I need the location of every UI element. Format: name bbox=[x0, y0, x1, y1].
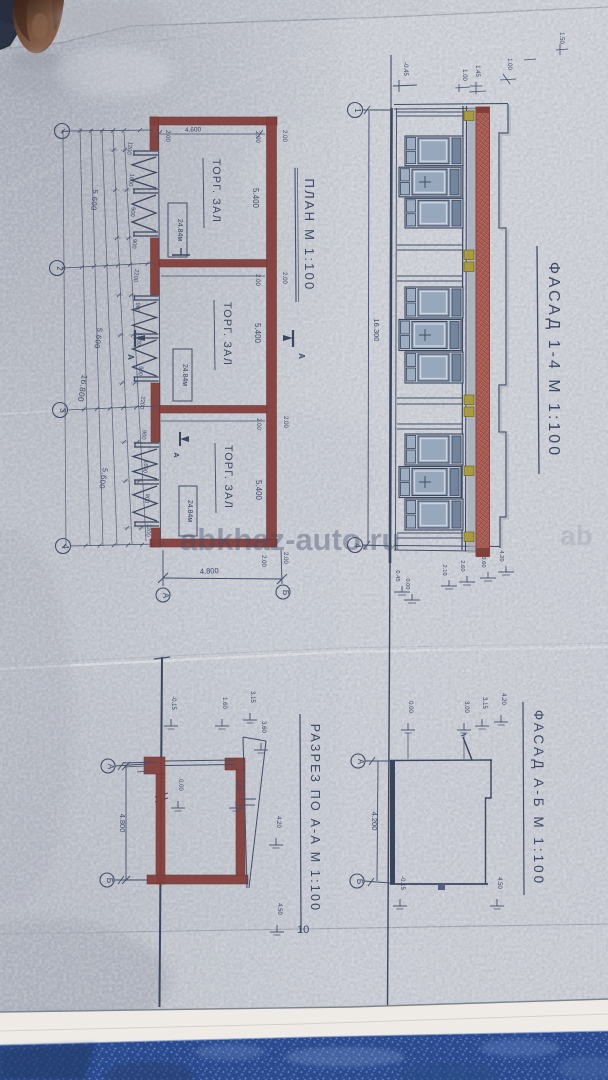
svg-text:4.20: 4.20 bbox=[500, 693, 506, 705]
svg-text:2.00: 2.00 bbox=[254, 274, 260, 286]
svg-text:900: 900 bbox=[130, 238, 137, 248]
svg-text:А: А bbox=[356, 759, 365, 765]
svg-text:10: 10 bbox=[297, 924, 309, 936]
svg-text:0.00: 0.00 bbox=[407, 701, 413, 713]
svg-text:2.00: 2.00 bbox=[260, 555, 266, 567]
svg-text:4.50: 4.50 bbox=[276, 903, 282, 915]
svg-text:1.60: 1.60 bbox=[221, 697, 227, 709]
svg-text:3.00: 3.00 bbox=[463, 701, 469, 713]
svg-text:1: 1 bbox=[353, 108, 362, 113]
svg-text:2.00: 2.00 bbox=[281, 130, 287, 142]
svg-text:-0.15: -0.15 bbox=[399, 876, 405, 890]
svg-text:900: 900 bbox=[143, 493, 150, 503]
svg-text:5.600: 5.600 bbox=[89, 189, 100, 211]
svg-text:-0.15: -0.15 bbox=[170, 696, 176, 710]
svg-text:ТОРГ. ЗАЛ: ТОРГ. ЗАЛ bbox=[222, 445, 234, 509]
svg-text:4.20: 4.20 bbox=[498, 550, 504, 561]
svg-text:5.400: 5.400 bbox=[254, 480, 263, 501]
svg-text:4.50: 4.50 bbox=[496, 877, 502, 889]
svg-text:4.600: 4.600 bbox=[185, 126, 202, 134]
svg-text:А: А bbox=[297, 353, 306, 359]
svg-text:А: А bbox=[172, 452, 181, 458]
svg-text:4.800: 4.800 bbox=[118, 814, 127, 833]
svg-text:1.00: 1.00 bbox=[506, 58, 512, 70]
svg-text:900: 900 bbox=[140, 429, 147, 439]
svg-text:2.60: 2.60 bbox=[459, 560, 465, 571]
svg-text:900: 900 bbox=[129, 207, 136, 217]
svg-text:3.60: 3.60 bbox=[480, 556, 486, 567]
svg-text:А: А bbox=[106, 764, 115, 770]
svg-text:4.200: 4.200 bbox=[370, 812, 379, 831]
svg-text:ФАСАД 1-4 М 1:100: ФАСАД 1-4 М 1:100 bbox=[545, 262, 562, 458]
svg-text:1.45: 1.45 bbox=[474, 65, 480, 77]
svg-text:3.15: 3.15 bbox=[481, 697, 487, 709]
svg-text:5.400: 5.400 bbox=[251, 188, 260, 209]
svg-text:4.20: 4.20 bbox=[275, 816, 281, 828]
svg-text:0.00: 0.00 bbox=[177, 779, 183, 791]
svg-text:16.300: 16.300 bbox=[372, 319, 381, 342]
svg-text:abkhaz-auto.ru: abkhaz-auto.ru bbox=[180, 522, 400, 557]
svg-text:ab: ab bbox=[560, 520, 593, 551]
svg-text:4: 4 bbox=[61, 544, 70, 549]
svg-text:РАЗРЕЗ ПО А-А М 1:100: РАЗРЕЗ ПО А-А М 1:100 bbox=[308, 724, 322, 913]
svg-text:ТОРГ. ЗАЛ: ТОРГ. ЗАЛ bbox=[221, 302, 233, 366]
svg-text:0.00: 0.00 bbox=[404, 578, 410, 589]
svg-text:24.84м: 24.84м bbox=[186, 500, 193, 523]
svg-text:1.00: 1.00 bbox=[461, 69, 467, 81]
svg-text:2.10: 2.10 bbox=[441, 564, 447, 575]
svg-text:2.00: 2.00 bbox=[282, 416, 288, 428]
svg-text:1: 1 bbox=[60, 129, 69, 134]
svg-text:А: А bbox=[126, 354, 135, 360]
svg-text:2.00: 2.00 bbox=[164, 130, 170, 142]
svg-text:2.00: 2.00 bbox=[254, 131, 260, 143]
svg-text:900: 900 bbox=[137, 366, 144, 376]
svg-text:ПЛАН М 1:100: ПЛАН М 1:100 bbox=[302, 179, 317, 292]
svg-text:-0.45: -0.45 bbox=[402, 62, 408, 76]
svg-text:Б: Б bbox=[355, 879, 364, 884]
svg-text:ТОРГ. ЗАЛ: ТОРГ. ЗАЛ bbox=[210, 159, 222, 223]
svg-text:24.84м: 24.84м bbox=[181, 364, 188, 387]
svg-text:2: 2 bbox=[55, 266, 64, 271]
svg-text:2.00: 2.00 bbox=[281, 272, 287, 284]
svg-text:900: 900 bbox=[133, 302, 140, 312]
svg-text:3.00: 3.00 bbox=[235, 779, 241, 791]
svg-text:4.800: 4.800 bbox=[200, 566, 219, 576]
svg-text:Б: Б bbox=[281, 590, 290, 595]
svg-text:1.50: 1.50 bbox=[558, 32, 564, 44]
svg-text:2.00: 2.00 bbox=[255, 418, 261, 430]
svg-text:5.400: 5.400 bbox=[253, 323, 262, 344]
svg-text:Б: Б bbox=[105, 878, 114, 883]
svg-text:ФАСАД А-Б М 1:100: ФАСАД А-Б М 1:100 bbox=[531, 710, 546, 886]
svg-text:24.84м: 24.84м bbox=[176, 219, 183, 242]
svg-text:0.45: 0.45 bbox=[394, 570, 400, 581]
svg-text:3: 3 bbox=[58, 408, 67, 413]
svg-text:3.60: 3.60 bbox=[260, 721, 266, 733]
svg-text:А: А bbox=[161, 593, 170, 599]
svg-text:3.15: 3.15 bbox=[249, 691, 255, 703]
